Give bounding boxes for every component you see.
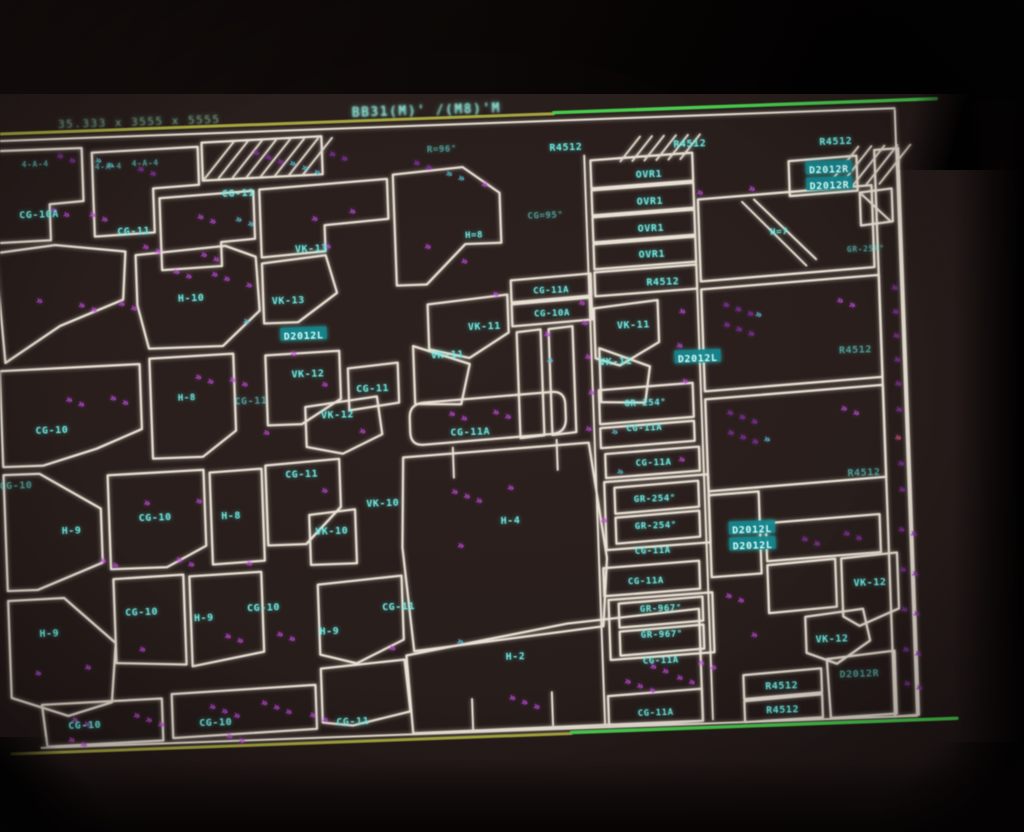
nest-marker: » <box>680 374 692 389</box>
part-label: 4-A-4 <box>21 159 48 169</box>
part-outline <box>399 442 610 651</box>
part-label: CG-10A <box>534 308 570 319</box>
part-label: D2012L <box>733 540 773 552</box>
part-label: D2012R <box>809 164 849 176</box>
part-label: H-2 <box>505 651 525 663</box>
nest-marker: » » » <box>449 484 485 508</box>
hatch-line <box>203 141 235 178</box>
part-label: GR-967° <box>641 629 683 641</box>
nest-marker: » <box>34 293 46 308</box>
part-label: CG-11A <box>635 546 671 557</box>
part-label: R4512 <box>765 680 798 692</box>
nest-marker: » <box>142 496 154 511</box>
part-outline <box>767 559 837 613</box>
nest-marker: » » <box>491 405 515 424</box>
nest-marker: » <box>542 327 554 342</box>
part-label: H-9 <box>61 525 81 537</box>
nest-marker: » <box>455 634 467 649</box>
nest-marker: » » <box>839 401 863 420</box>
bezel-right <box>954 100 1024 792</box>
part-label: CG-11 <box>356 383 389 395</box>
nest-marker: » <box>490 287 502 302</box>
nest-marker: » <box>319 483 331 498</box>
part-outline <box>548 326 576 435</box>
part-label: VK-11 <box>431 349 464 361</box>
nest-marker: » <box>309 211 321 226</box>
nest-marker: » » <box>674 670 698 689</box>
part-label: H-10 <box>178 293 205 305</box>
nest-marker: » <box>892 352 904 367</box>
nest-marker: » » <box>902 676 926 695</box>
part-label: CG-10A <box>19 209 59 221</box>
nest-marker: » <box>676 452 688 467</box>
part-label: OVR1 <box>637 196 664 208</box>
nest-marker: » » <box>835 293 859 312</box>
nest-marker: » » <box>223 629 247 648</box>
part-label: CG-11 <box>382 601 415 613</box>
part-label: CG-11A <box>637 708 673 719</box>
nest-marker: » <box>244 556 256 571</box>
part-outline <box>149 354 237 459</box>
nest-marker: » <box>586 385 598 400</box>
nest-marker: » <box>893 430 905 445</box>
nest-marker: » » <box>199 247 223 266</box>
part-label: CG-10 <box>125 607 158 619</box>
nest-marker: » » <box>841 526 865 545</box>
part-label: GR-254° <box>624 398 666 410</box>
part-label: CG-11 <box>336 716 369 728</box>
nest-marker: » » <box>327 147 351 166</box>
part-label: D2012L <box>678 353 718 365</box>
nest-marker: » » <box>64 392 88 411</box>
nest-marker: » » » <box>259 695 295 719</box>
nest-marker: » » <box>696 655 720 674</box>
part-label: H-8 <box>178 393 196 404</box>
part-label: CG-11A <box>533 285 569 296</box>
part-label: R4512 <box>673 138 706 150</box>
part-label: VK-11 <box>617 319 650 331</box>
part-label: R=96° <box>427 144 457 155</box>
part-outline <box>262 255 338 324</box>
part-outline <box>305 396 383 455</box>
nest-marker: » <box>422 239 434 254</box>
nest-marker: » » <box>55 149 79 168</box>
part-label: GR-254° <box>634 494 676 506</box>
part-label: VK-10 <box>315 526 348 538</box>
bezel-corner-bottom-right <box>824 742 1024 832</box>
part-label: R4512 <box>766 704 799 716</box>
part-label: OVR1 <box>637 223 664 235</box>
part-label: OVR1 <box>638 249 665 261</box>
part-label: CG-10 <box>68 720 101 732</box>
sheet-border-line <box>472 699 473 731</box>
part-label: CG-11A <box>635 458 671 469</box>
part-label: H-9 <box>319 626 339 638</box>
part-label: H-4 <box>500 515 520 527</box>
nest-marker: » » <box>87 207 111 226</box>
part-label: VK-11 <box>599 356 632 368</box>
part-label: H=7 <box>770 227 788 238</box>
nest-marker: » <box>677 304 689 319</box>
sheet-border-line <box>552 692 553 725</box>
part-label: D2012R <box>839 668 879 680</box>
nest-marker: » » <box>98 553 122 572</box>
part-label: CG-11 <box>117 226 150 238</box>
nest-marker: » <box>896 456 908 471</box>
part-label: GR-967° <box>640 603 682 615</box>
part-label: CG-11 <box>285 469 318 481</box>
nest-marker: » » <box>76 298 100 317</box>
nest-marker: » <box>347 204 359 219</box>
part-label: CG-11A <box>450 426 490 438</box>
part-label: 4-A-4 <box>95 162 122 172</box>
part-label: 4-A-4 <box>131 158 158 168</box>
part-label: VK-12 <box>321 409 354 421</box>
nest-marker: » » <box>899 602 923 621</box>
part-label: H-9 <box>194 613 214 625</box>
part-label: VK-12 <box>815 633 848 645</box>
monitor-photo: 35.333 x 3555 x 5555 BB31(M)' /(M8)'M » … <box>0 0 1024 832</box>
nest-marker: » » <box>898 562 922 581</box>
part-label: D2012L <box>732 524 772 536</box>
part-label: D2012L <box>284 330 324 342</box>
nest-marker: » » <box>447 406 471 425</box>
part-outline <box>827 651 897 718</box>
part-label: CG=95° <box>527 210 563 221</box>
nest-marker: » <box>244 278 256 293</box>
part-label: R4512 <box>646 276 679 288</box>
nest-marker: » » <box>901 642 925 661</box>
part-outline <box>113 575 186 668</box>
part-label: R4512 <box>847 467 880 479</box>
nest-marker: » <box>241 314 253 329</box>
nest-marker: » <box>890 304 902 319</box>
part-outline <box>599 346 651 404</box>
part-label: CG-11 <box>234 395 267 407</box>
part-outline <box>0 243 129 364</box>
part-outline <box>8 596 118 718</box>
nest-marker: » <box>137 642 149 657</box>
part-outline <box>172 685 318 738</box>
sheet-border-line <box>557 440 558 470</box>
nest-marker: » <box>583 349 595 364</box>
nest-marker: » <box>889 280 901 295</box>
nest-marker: » <box>893 376 905 391</box>
nest-marker: » » <box>193 370 217 389</box>
part-label: VK-10 <box>366 498 399 510</box>
nest-marker: » » <box>195 209 219 228</box>
nest-marker: » <box>33 666 45 681</box>
part-outline <box>701 275 883 391</box>
part-label: VK-13 <box>295 243 328 255</box>
hatch-line <box>644 136 665 161</box>
part-label: VK-13 <box>272 295 305 307</box>
bezel-top <box>0 0 1024 94</box>
nest-marker: » <box>83 660 95 675</box>
part-label: R4512 <box>549 142 582 154</box>
part-label: D2012R <box>809 180 849 192</box>
bezel-corner-bottom-left <box>0 737 130 832</box>
nest-marker: » <box>455 538 467 553</box>
nest-marker: » <box>387 641 399 656</box>
part-label: OVR1 <box>636 169 663 181</box>
part-label: VK-12 <box>853 577 886 589</box>
nest-marker: » » <box>723 588 747 607</box>
nest-marker: » <box>897 482 909 497</box>
part-label: R4512 <box>819 136 852 148</box>
part-label: CG-10 <box>247 602 280 614</box>
part-label: H=8 <box>465 230 483 241</box>
nest-marker: » <box>749 627 761 642</box>
nest-marker: » » <box>108 391 132 410</box>
part-label: CG-11A <box>626 423 662 434</box>
nest-marker: » <box>894 402 906 417</box>
part-label: CG-11A <box>628 576 664 587</box>
part-label: CG-11 <box>222 188 255 200</box>
nest-marker: » <box>288 346 300 361</box>
part-label: H-8 <box>221 510 241 522</box>
part-label: CG-10 <box>138 512 171 524</box>
part-label: CG-10 <box>199 717 232 729</box>
part-label: H-9 <box>39 628 59 640</box>
sheet-border-line <box>453 448 454 478</box>
nest-marker: » <box>459 254 471 269</box>
part-label: CG-10 <box>0 480 33 492</box>
nest-marker: » » <box>209 267 233 286</box>
nest-marker: » » <box>896 522 920 541</box>
nest-marker: » » <box>174 553 198 572</box>
part-outline <box>0 364 143 467</box>
part-label: R4512 <box>839 344 872 356</box>
part-label: VK-11 <box>468 321 501 333</box>
part-label: GR-254° <box>635 520 677 532</box>
nest-marker: » » » <box>507 690 543 714</box>
hatch-line <box>217 141 249 178</box>
nest-marker: » » <box>799 532 823 551</box>
part-outline <box>517 329 545 438</box>
nest-marker: » » <box>275 627 299 646</box>
nest-marker: » » <box>227 372 251 391</box>
nest-marker: » <box>505 480 517 495</box>
part-label: VK-12 <box>291 368 324 380</box>
part-label: CG-10 <box>35 425 68 437</box>
nest-marker: » <box>891 328 903 343</box>
part-label: CG-11A <box>643 656 679 667</box>
part-label: GR-254° <box>847 244 885 254</box>
nest-marker: » <box>545 353 557 368</box>
nest-marker: » <box>261 425 273 440</box>
cad-drawing-canvas[interactable]: 35.333 x 3555 x 5555 BB31(M)' /(M8)'M » … <box>0 0 1024 832</box>
nest-marker: » <box>357 424 369 439</box>
nest-marker: » <box>762 432 774 447</box>
nest-marker: » » <box>308 708 332 727</box>
